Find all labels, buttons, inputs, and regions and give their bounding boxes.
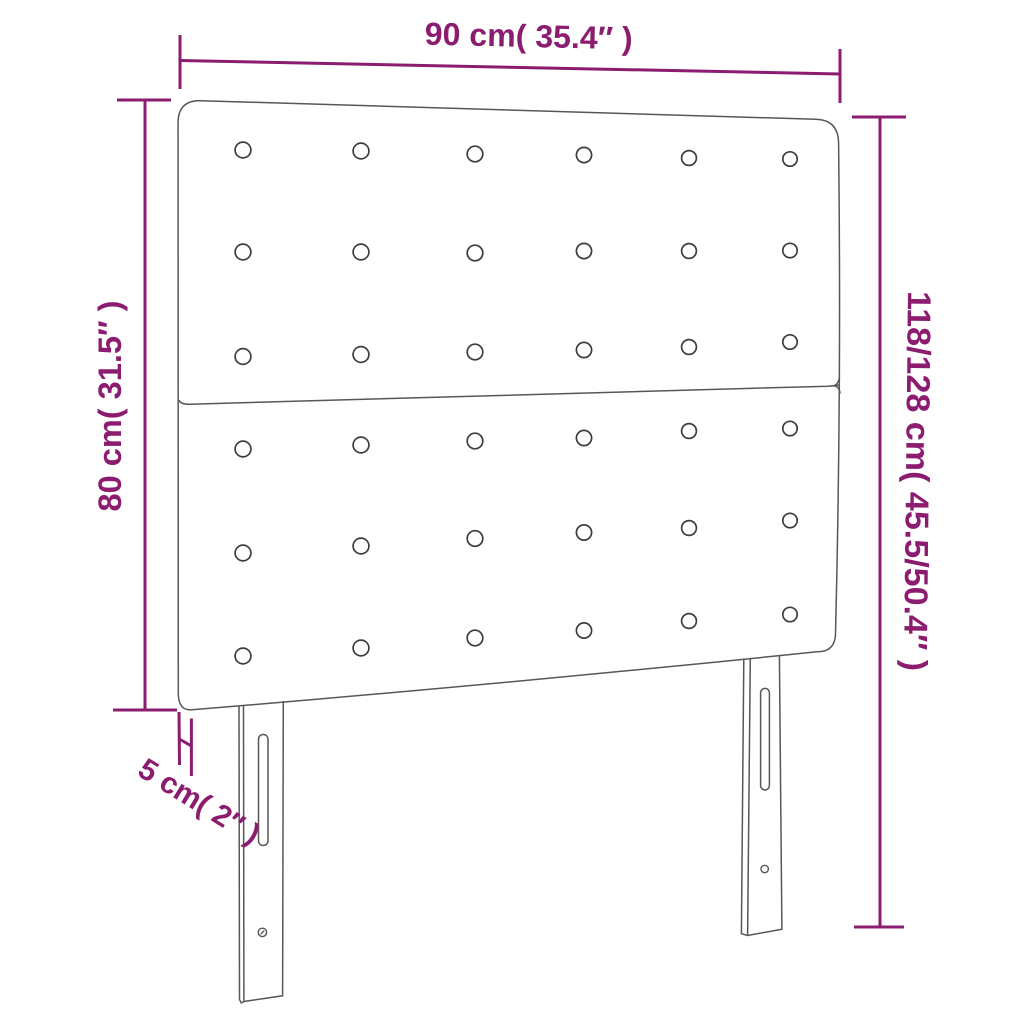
svg-text:90 cm( 35.4″ ): 90 cm( 35.4″ ) — [424, 16, 633, 57]
svg-text:80 cm( 31.5″ ): 80 cm( 31.5″ ) — [92, 301, 128, 512]
svg-text:118/128 cm( 45.5/50.4″ ): 118/128 cm( 45.5/50.4″ ) — [897, 291, 938, 671]
